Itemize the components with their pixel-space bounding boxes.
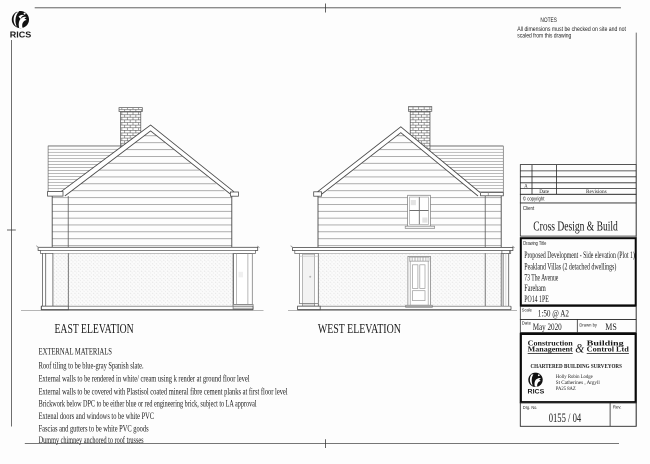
svg-text:PA25 8AZ: PA25 8AZ	[556, 387, 576, 392]
svg-text:Control Ltd: Control Ltd	[587, 346, 629, 354]
svg-text:RICS: RICS	[528, 389, 545, 396]
svg-text:© copyright: © copyright	[523, 196, 545, 203]
svg-text:0155 / 04: 0155 / 04	[549, 410, 582, 425]
svg-text:scaled from this drawing: scaled from this drawing	[517, 34, 571, 40]
svg-text:Fareham: Fareham	[524, 283, 546, 293]
svg-text:Dummy chimney anchored to roof: Dummy chimney anchored to roof trusses	[39, 435, 144, 446]
svg-text:CHARTERED BUILDING SURVEYORS: CHARTERED BUILDING SURVEYORS	[531, 363, 623, 370]
svg-text:Brickwork below DPC to be eith: Brickwork below DPC to be either blue or…	[39, 399, 257, 409]
svg-text:MS: MS	[605, 323, 617, 333]
svg-text:1:50 @ A2: 1:50 @ A2	[538, 310, 569, 320]
svg-text:Date: Date	[522, 321, 532, 326]
svg-text:Drg. No.: Drg. No.	[523, 405, 538, 411]
svg-text:EAST ELEVATION: EAST ELEVATION	[55, 321, 134, 336]
svg-text:Drawn by: Drawn by	[579, 323, 597, 328]
svg-text:A: A	[524, 184, 528, 189]
svg-text:Client: Client	[523, 206, 535, 212]
svg-text:All dimensions must be checked: All dimensions must be checked on site a…	[517, 27, 626, 33]
svg-text:External walls to be covered w: External walls to be covered with Plasti…	[39, 386, 288, 397]
svg-text:EXTERNAL MATERIALS: EXTERNAL MATERIALS	[39, 346, 112, 356]
svg-text:WEST ELEVATION: WEST ELEVATION	[318, 321, 401, 336]
svg-text:Proposed Development - Side el: Proposed Development - Side elevation (P…	[524, 250, 635, 260]
svg-text:PO14 1PE: PO14 1PE	[524, 294, 549, 304]
svg-text:73 The Avenue: 73 The Avenue	[524, 272, 558, 282]
svg-text:Cross Design & Build: Cross Design & Build	[533, 218, 618, 233]
svg-text:St Catherines , Argyll: St Catherines , Argyll	[556, 381, 601, 386]
svg-text:Scale: Scale	[522, 308, 532, 313]
svg-text:Roof tiling to be blue-gray Sp: Roof tiling to be blue-gray Spanish slat…	[39, 360, 144, 371]
svg-text:External walls to be rendered: External walls to be rendered in white/ …	[39, 373, 250, 384]
svg-text:Extenal doors and windows to b: Extenal doors and windows to be white PV…	[39, 412, 155, 422]
svg-text:Fascias and gutters to be whit: Fascias and gutters to be white PVC good…	[39, 424, 149, 434]
svg-text:May 2020: May 2020	[533, 323, 562, 333]
svg-text:Drawing Title: Drawing Title	[523, 241, 546, 247]
svg-text:&: &	[575, 341, 585, 356]
svg-text:Holly Robin Lodge: Holly Robin Lodge	[556, 375, 593, 380]
svg-text:Management: Management	[528, 346, 574, 354]
svg-text:RICS: RICS	[10, 29, 32, 39]
svg-text:Peakland Villas (2 detached d: Peakland Villas (2 detached dwellings)	[524, 262, 616, 272]
svg-text:Rev.: Rev.	[613, 405, 622, 411]
svg-text:NOTES: NOTES	[540, 17, 557, 24]
